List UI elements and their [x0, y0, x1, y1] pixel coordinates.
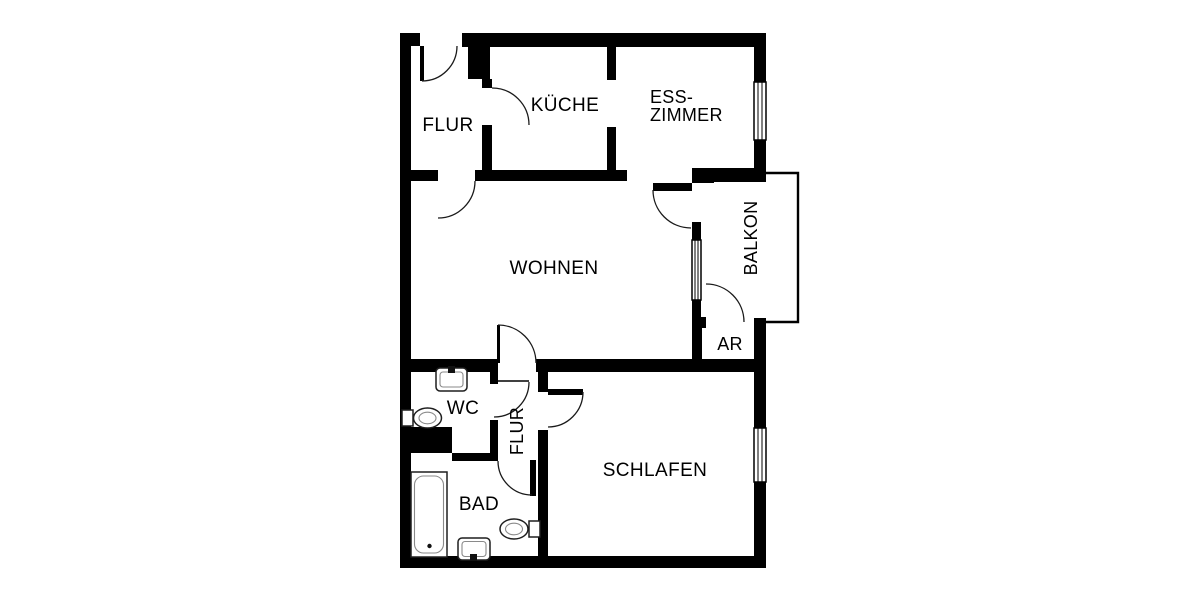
room-label-esszimmer-line1: ESS-: [650, 87, 693, 107]
window-icon: [754, 428, 766, 482]
wall-segment: [468, 46, 490, 79]
room-label-balkon: BALKON: [741, 201, 761, 276]
window-icon: [692, 240, 701, 300]
wall-segment: [692, 168, 714, 183]
kitchen-door-icon: [492, 88, 529, 125]
wall-segment: [754, 318, 766, 428]
room-labels: FLUR KÜCHE ESS- ZIMMER WOHNEN BALKON AR …: [422, 87, 761, 515]
room-label-kueche: KÜCHE: [531, 95, 600, 116]
wall-segment: [452, 453, 498, 461]
bathtub-icon: [411, 472, 447, 557]
room-label-wc: WC: [447, 398, 479, 419]
wall-segment: [536, 359, 766, 372]
wall-segment: [483, 170, 627, 181]
bath-door-icon: [498, 460, 536, 496]
wall-segment: [754, 482, 766, 568]
room-label-schlafen: SCHLAFEN: [603, 460, 708, 481]
room-label-wohnen: WOHNEN: [510, 258, 599, 279]
wall-segment: [482, 125, 492, 171]
hall-living-door-icon: [438, 181, 475, 218]
wall-segment: [411, 427, 452, 453]
washbasin-icon: [458, 538, 490, 561]
living-hall-door-icon: [497, 325, 536, 363]
wall-segment: [754, 140, 766, 172]
balcony-door-icon: [653, 183, 692, 228]
balcony-outline: [758, 173, 798, 322]
wall-segment: [400, 556, 766, 568]
floor-plan-canvas: FLUR KÜCHE ESS- ZIMMER WOHNEN BALKON AR …: [0, 0, 1200, 600]
washbasin-icon: [436, 366, 467, 391]
toilet-icon: [500, 519, 540, 539]
storage-door-icon: [706, 284, 744, 322]
room-label-esszimmer-line2: ZIMMER: [650, 105, 723, 125]
fixtures: [402, 366, 540, 561]
toilet-icon: [402, 408, 442, 428]
wall-segment: [482, 79, 492, 88]
room-label-bad: BAD: [459, 494, 499, 515]
wall-segment: [754, 33, 766, 82]
wall-segment: [692, 222, 701, 240]
floor-plan: FLUR KÜCHE ESS- ZIMMER WOHNEN BALKON AR …: [0, 0, 1200, 600]
wall-segment: [607, 127, 616, 171]
bedroom-door-icon: [548, 389, 583, 427]
window-icon: [754, 82, 766, 140]
wall-segment: [411, 170, 438, 181]
entrance-door-icon: [420, 46, 457, 81]
room-label-flur-inner: FLUR: [507, 407, 527, 455]
room-label-flur-entry: FLUR: [422, 115, 473, 136]
wall-segment: [400, 33, 411, 568]
wall-segment: [538, 372, 548, 392]
room-label-ar: AR: [717, 334, 743, 354]
wall-segment: [607, 46, 616, 80]
wall-segment: [692, 300, 701, 318]
wall-segment: [462, 33, 766, 47]
wall-segment: [490, 372, 498, 384]
